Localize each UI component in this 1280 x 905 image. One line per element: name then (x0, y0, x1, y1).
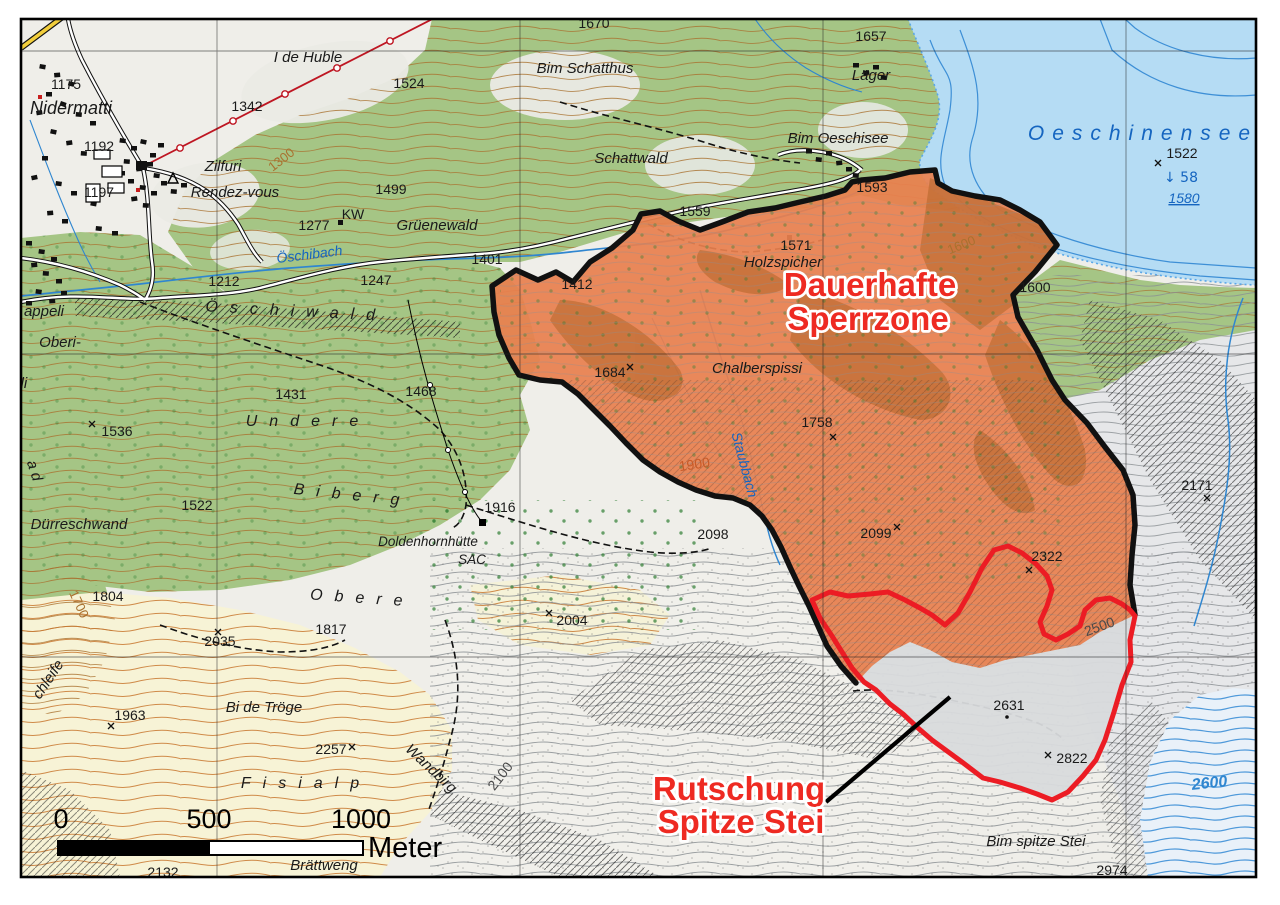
map-label: 1468 (405, 383, 436, 399)
map-label: Oeschinensee (1028, 122, 1258, 145)
map-label: 1536 (101, 423, 132, 439)
building (42, 156, 48, 161)
building (836, 160, 842, 165)
scale-tick-1000: 1000 (331, 804, 391, 834)
building (143, 203, 149, 208)
building (66, 140, 73, 145)
building (128, 179, 134, 184)
map-label: Chalberspissi (712, 360, 803, 377)
zone-warning-label: Spitze Stei (658, 803, 825, 840)
map-label: 1571 (780, 237, 811, 253)
building (47, 210, 53, 215)
map-screenshot: Nidermatti117511921197ZilfuriRendez-vous… (0, 0, 1280, 905)
map-label: 1212 (208, 273, 239, 289)
map-label: SAC (458, 552, 486, 567)
map-label: 1197 (84, 184, 114, 200)
building (150, 153, 156, 158)
map-label: 1342 (231, 98, 262, 114)
map-label: 1600 (1019, 279, 1050, 295)
building (140, 185, 146, 190)
map-label: ↓ 58 (1164, 170, 1198, 186)
building (90, 121, 96, 126)
building (119, 138, 126, 143)
map-label: 2257 (315, 741, 346, 757)
map-label: Brättweng (290, 857, 358, 874)
scale-bar-filled (58, 841, 210, 855)
building (71, 191, 77, 196)
scale-unit: Meter (368, 832, 442, 864)
map-label: 2822 (1056, 750, 1087, 766)
map-label: Fisialp (241, 775, 371, 792)
building (131, 196, 138, 201)
map-label: 1580 (1168, 190, 1199, 206)
map-label: Nidermatti (30, 98, 113, 118)
zone-warning-label: Sperrzone (787, 300, 948, 337)
map-label: Läger (852, 67, 891, 84)
map-label: 2974 (1096, 862, 1127, 878)
building (131, 146, 137, 151)
map-label: appeli (24, 303, 65, 320)
map-label: 2631 (993, 697, 1024, 713)
map-label: 1916 (484, 499, 515, 515)
map-label: 1412 (561, 276, 592, 292)
map-label: Doldenhornhütte (378, 534, 478, 549)
map-label: 1522 (181, 497, 212, 513)
stop-marker (136, 188, 140, 192)
scale-tick-0: 0 (53, 804, 68, 834)
map-label: 1499 (375, 181, 406, 197)
building (158, 143, 164, 148)
map-label: Undere (246, 413, 370, 430)
building (31, 262, 37, 267)
map-label: I de Huble (274, 49, 342, 66)
map-label: 1175 (51, 76, 81, 92)
map-label: Dürreschwand (31, 516, 128, 533)
building (826, 151, 832, 156)
map-label: 1277 (298, 217, 329, 233)
map-label: Bim Oeschisee (788, 130, 889, 147)
map-label: 1657 (855, 28, 886, 44)
map-label: 1522 (1166, 145, 1197, 161)
building (161, 181, 167, 186)
map-label: Bi de Tröge (226, 699, 302, 716)
map-body: Nidermatti117511921197ZilfuriRendez-vous… (9, 7, 1258, 880)
building (51, 257, 57, 262)
building (136, 166, 142, 171)
building (38, 249, 45, 254)
map-label: 1524 (393, 75, 424, 91)
spot-dot (1005, 715, 1009, 719)
map-label: 1963 (114, 707, 145, 723)
building (153, 173, 160, 178)
map-label: Bim spitze Stei (986, 833, 1086, 850)
map-label: 1593 (856, 179, 887, 195)
map-label: 1431 (275, 386, 306, 402)
building (806, 149, 812, 154)
building (846, 167, 852, 172)
map-label: Schattwald (594, 150, 668, 167)
building (112, 231, 118, 236)
building (55, 181, 62, 186)
map-label: 1559 (679, 203, 710, 219)
map-label: 1817 (315, 621, 346, 637)
map-label: Rendez-vous (191, 184, 280, 201)
map-label: 1758 (801, 414, 832, 430)
hut-icon (479, 519, 486, 526)
building (56, 279, 62, 284)
building (147, 162, 153, 167)
map-label: Grüenewald (397, 217, 479, 234)
map-label: 2004 (556, 612, 587, 628)
building (853, 173, 859, 178)
map-label: 2035 (204, 633, 235, 649)
building (61, 291, 67, 296)
map-label: Zilfuri (204, 158, 242, 175)
zone-warning-label: Dauerhafte (784, 266, 956, 303)
building (171, 189, 177, 194)
map-label: KW (342, 206, 365, 222)
building (46, 92, 52, 97)
map-label: Oberi- (39, 334, 81, 351)
map-label: 1247 (360, 272, 391, 288)
building (181, 183, 187, 188)
map-label: Bim Schatthus (537, 60, 634, 77)
map-label: 2099 (860, 525, 891, 541)
map-label: 2098 (697, 526, 728, 542)
building (35, 289, 42, 294)
zone-warning-label: Rutschung (653, 770, 825, 807)
building (62, 219, 68, 224)
building (124, 159, 130, 164)
topo-map: Nidermatti117511921197ZilfuriRendez-vous… (0, 0, 1280, 905)
map-label: 2171 (1181, 477, 1212, 493)
building (151, 191, 157, 196)
building (816, 157, 822, 162)
map-label: 1401 (471, 251, 502, 267)
map-label: 2322 (1031, 548, 1062, 564)
building (43, 271, 49, 276)
scale-tick-500: 500 (186, 804, 231, 834)
building (26, 241, 32, 246)
map-label: 1804 (92, 588, 123, 604)
map-label: 1684 (594, 364, 625, 380)
map-label: 1192 (84, 138, 114, 154)
building (96, 226, 102, 231)
